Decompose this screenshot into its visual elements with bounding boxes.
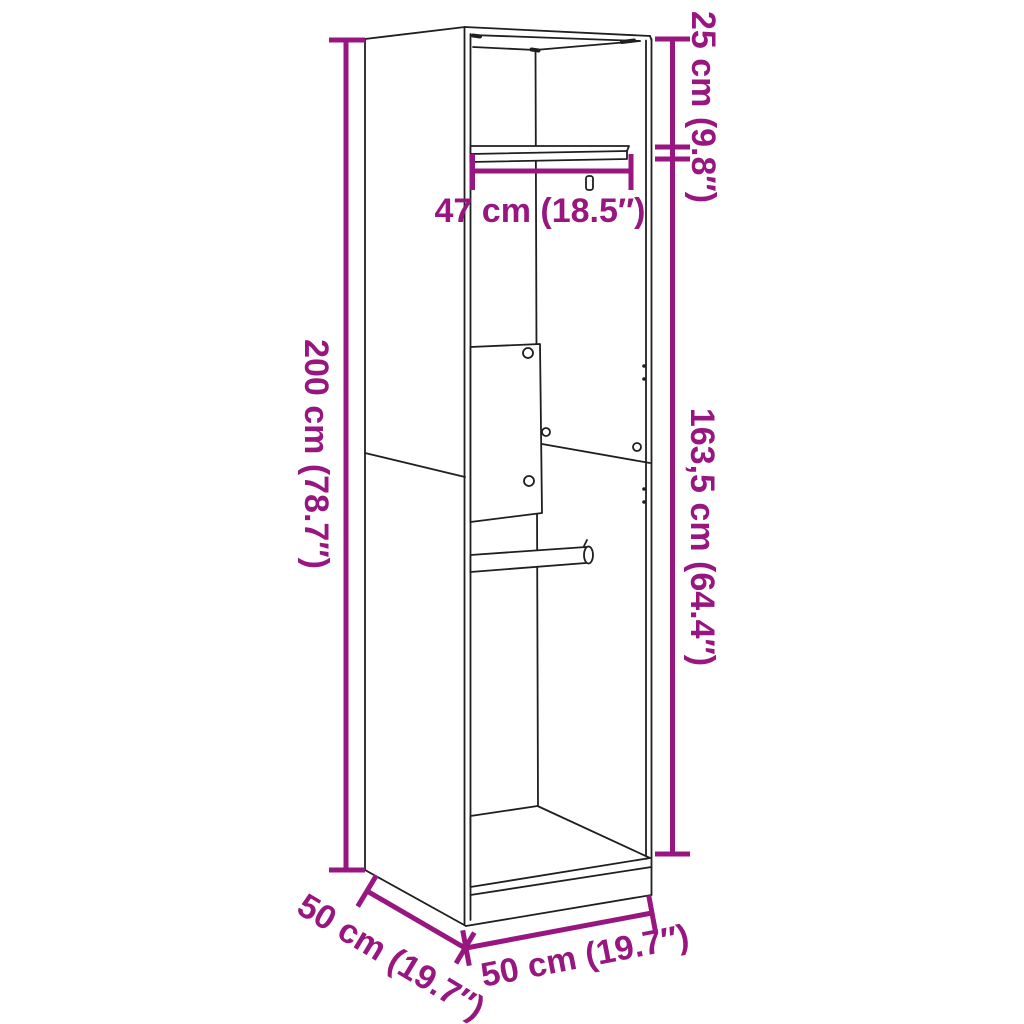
left-panel-seam: [365, 453, 465, 477]
front-right-edge: [642, 39, 651, 895]
hinge-hole: [642, 487, 646, 491]
top-panel: [465, 27, 652, 51]
dimension-total-height: 200 cm (78.7″): [297, 40, 365, 870]
wardrobe-dimension-diagram: 200 cm (78.7″) 25 cm (9.8″) 163,5 cm (64…: [0, 0, 1024, 1024]
left-side-panel: [365, 27, 466, 926]
back-panel: [471, 344, 543, 522]
screw-hole: [524, 476, 534, 486]
dimension-right-column: 25 cm (9.8″) 163,5 cm (64.4″): [655, 11, 722, 854]
wardrobe-drawing: [365, 27, 652, 926]
dimension-width: 50 cm (19.7″): [463, 895, 692, 994]
cam-lock-mark: [532, 50, 539, 51]
wardrobe-diagram-canvas: 200 cm (78.7″) 25 cm (9.8″) 163,5 cm (64…: [0, 0, 1024, 1024]
dimension-interior-width: 47 cm (18.5″): [435, 154, 646, 230]
hinge-hole: [642, 364, 646, 368]
hinge-hole: [642, 377, 646, 381]
screw-hole: [523, 348, 533, 358]
dimension-label-total-height: 200 cm (78.7″): [297, 339, 335, 569]
base-panel: [466, 806, 652, 926]
hinge-hole: [642, 500, 646, 504]
shelf-support-bracket: [586, 176, 593, 190]
cam-lock-mark: [622, 41, 634, 43]
dimension-depth: 50 cm (19.7″): [291, 876, 491, 1024]
screw-hole: [542, 428, 550, 436]
dimension-label-width: 50 cm (19.7″): [478, 917, 692, 995]
top-shelf: [471, 146, 630, 190]
cam-lock-mark: [473, 36, 480, 37]
dimension-label-top-section: 25 cm (9.8″): [684, 11, 722, 203]
dimension-label-interior-width: 47 cm (18.5″): [435, 192, 646, 230]
clothes-rail: [471, 540, 594, 572]
screw-hole: [633, 443, 641, 451]
dimension-label-interior-height: 163,5 cm (64.4″): [683, 408, 721, 666]
rail-end-cap: [584, 547, 593, 564]
